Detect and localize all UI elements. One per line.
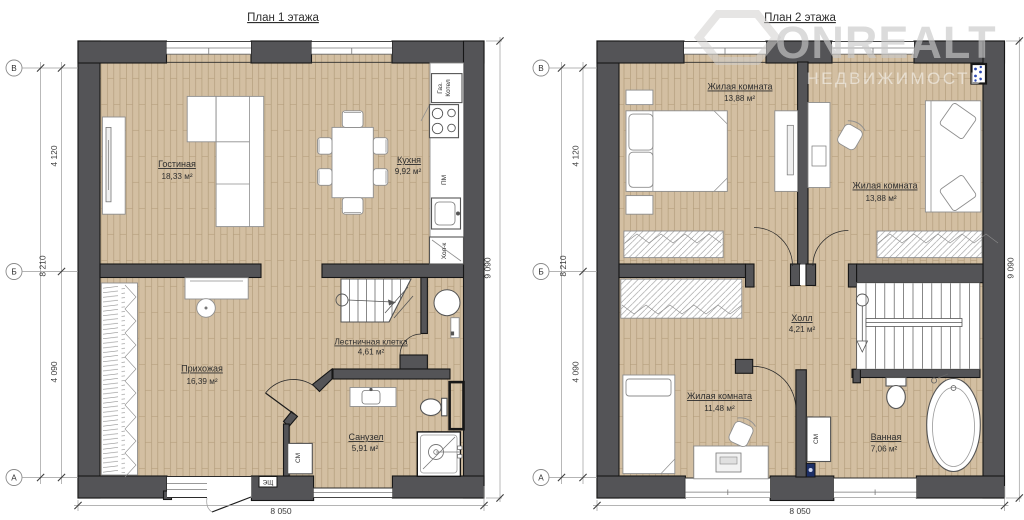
svg-text:СМ: СМ: [813, 434, 820, 444]
svg-text:13,88 м²: 13,88 м²: [865, 194, 896, 203]
svg-text:ЭЩ: ЭЩ: [263, 480, 274, 487]
svg-text:7,06 м²: 7,06 м²: [871, 445, 898, 454]
svg-text:Жилая комната: Жилая комната: [852, 181, 917, 191]
svg-text:План 1 этажа: План 1 этажа: [247, 12, 319, 24]
svg-text:Холл: Холл: [791, 313, 812, 323]
svg-text:11,48 м²: 11,48 м²: [704, 404, 735, 413]
svg-text:В: В: [11, 64, 17, 73]
svg-text:4 090: 4 090: [49, 361, 59, 383]
svg-text:Жилая комната: Жилая комната: [687, 391, 752, 401]
svg-text:Кухня: Кухня: [397, 155, 421, 165]
svg-text:9 090: 9 090: [1006, 257, 1016, 279]
svg-text:16,39 м²: 16,39 м²: [186, 377, 217, 386]
svg-text:А: А: [538, 474, 544, 483]
svg-text:Б: Б: [11, 268, 16, 277]
svg-text:Санузел: Санузел: [348, 432, 383, 442]
svg-text:В: В: [538, 64, 544, 73]
svg-text:НЕДВИЖИМОСТЬ: НЕДВИЖИМОСТЬ: [806, 69, 983, 88]
svg-text:Хол-к: Хол-к: [441, 243, 448, 260]
svg-text:ONREALT: ONREALT: [775, 17, 996, 68]
svg-text:9 090: 9 090: [483, 257, 493, 279]
svg-text:9,92 м²: 9,92 м²: [395, 167, 422, 176]
svg-text:А: А: [11, 474, 17, 483]
svg-text:13,88 м²: 13,88 м²: [724, 94, 755, 103]
svg-text:Лестничная клетка: Лестничная клетка: [334, 337, 408, 347]
svg-text:Котел: Котел: [445, 79, 452, 97]
svg-text:18,33 м²: 18,33 м²: [161, 172, 192, 181]
svg-text:5,91 м²: 5,91 м²: [352, 444, 379, 453]
svg-text:4,21 м²: 4,21 м²: [789, 325, 816, 334]
svg-text:8 050: 8 050: [789, 506, 811, 516]
svg-text:Жилая комната: Жилая комната: [707, 82, 772, 92]
svg-text:СМ: СМ: [295, 453, 302, 463]
svg-text:Ванная: Ванная: [871, 432, 902, 442]
svg-text:Газ.: Газ.: [437, 82, 444, 94]
svg-text:8 210: 8 210: [38, 255, 48, 277]
svg-text:4 120: 4 120: [571, 145, 581, 167]
svg-text:Б: Б: [538, 268, 543, 277]
svg-text:8 210: 8 210: [558, 255, 568, 277]
svg-text:Прихожая: Прихожая: [181, 364, 223, 374]
svg-text:ПМ: ПМ: [441, 175, 448, 185]
svg-text:4 120: 4 120: [49, 145, 59, 167]
svg-text:4,61 м²: 4,61 м²: [358, 348, 385, 357]
svg-text:8 050: 8 050: [270, 506, 292, 516]
svg-text:Гостиная: Гостиная: [158, 159, 196, 169]
svg-text:4 090: 4 090: [571, 361, 581, 383]
